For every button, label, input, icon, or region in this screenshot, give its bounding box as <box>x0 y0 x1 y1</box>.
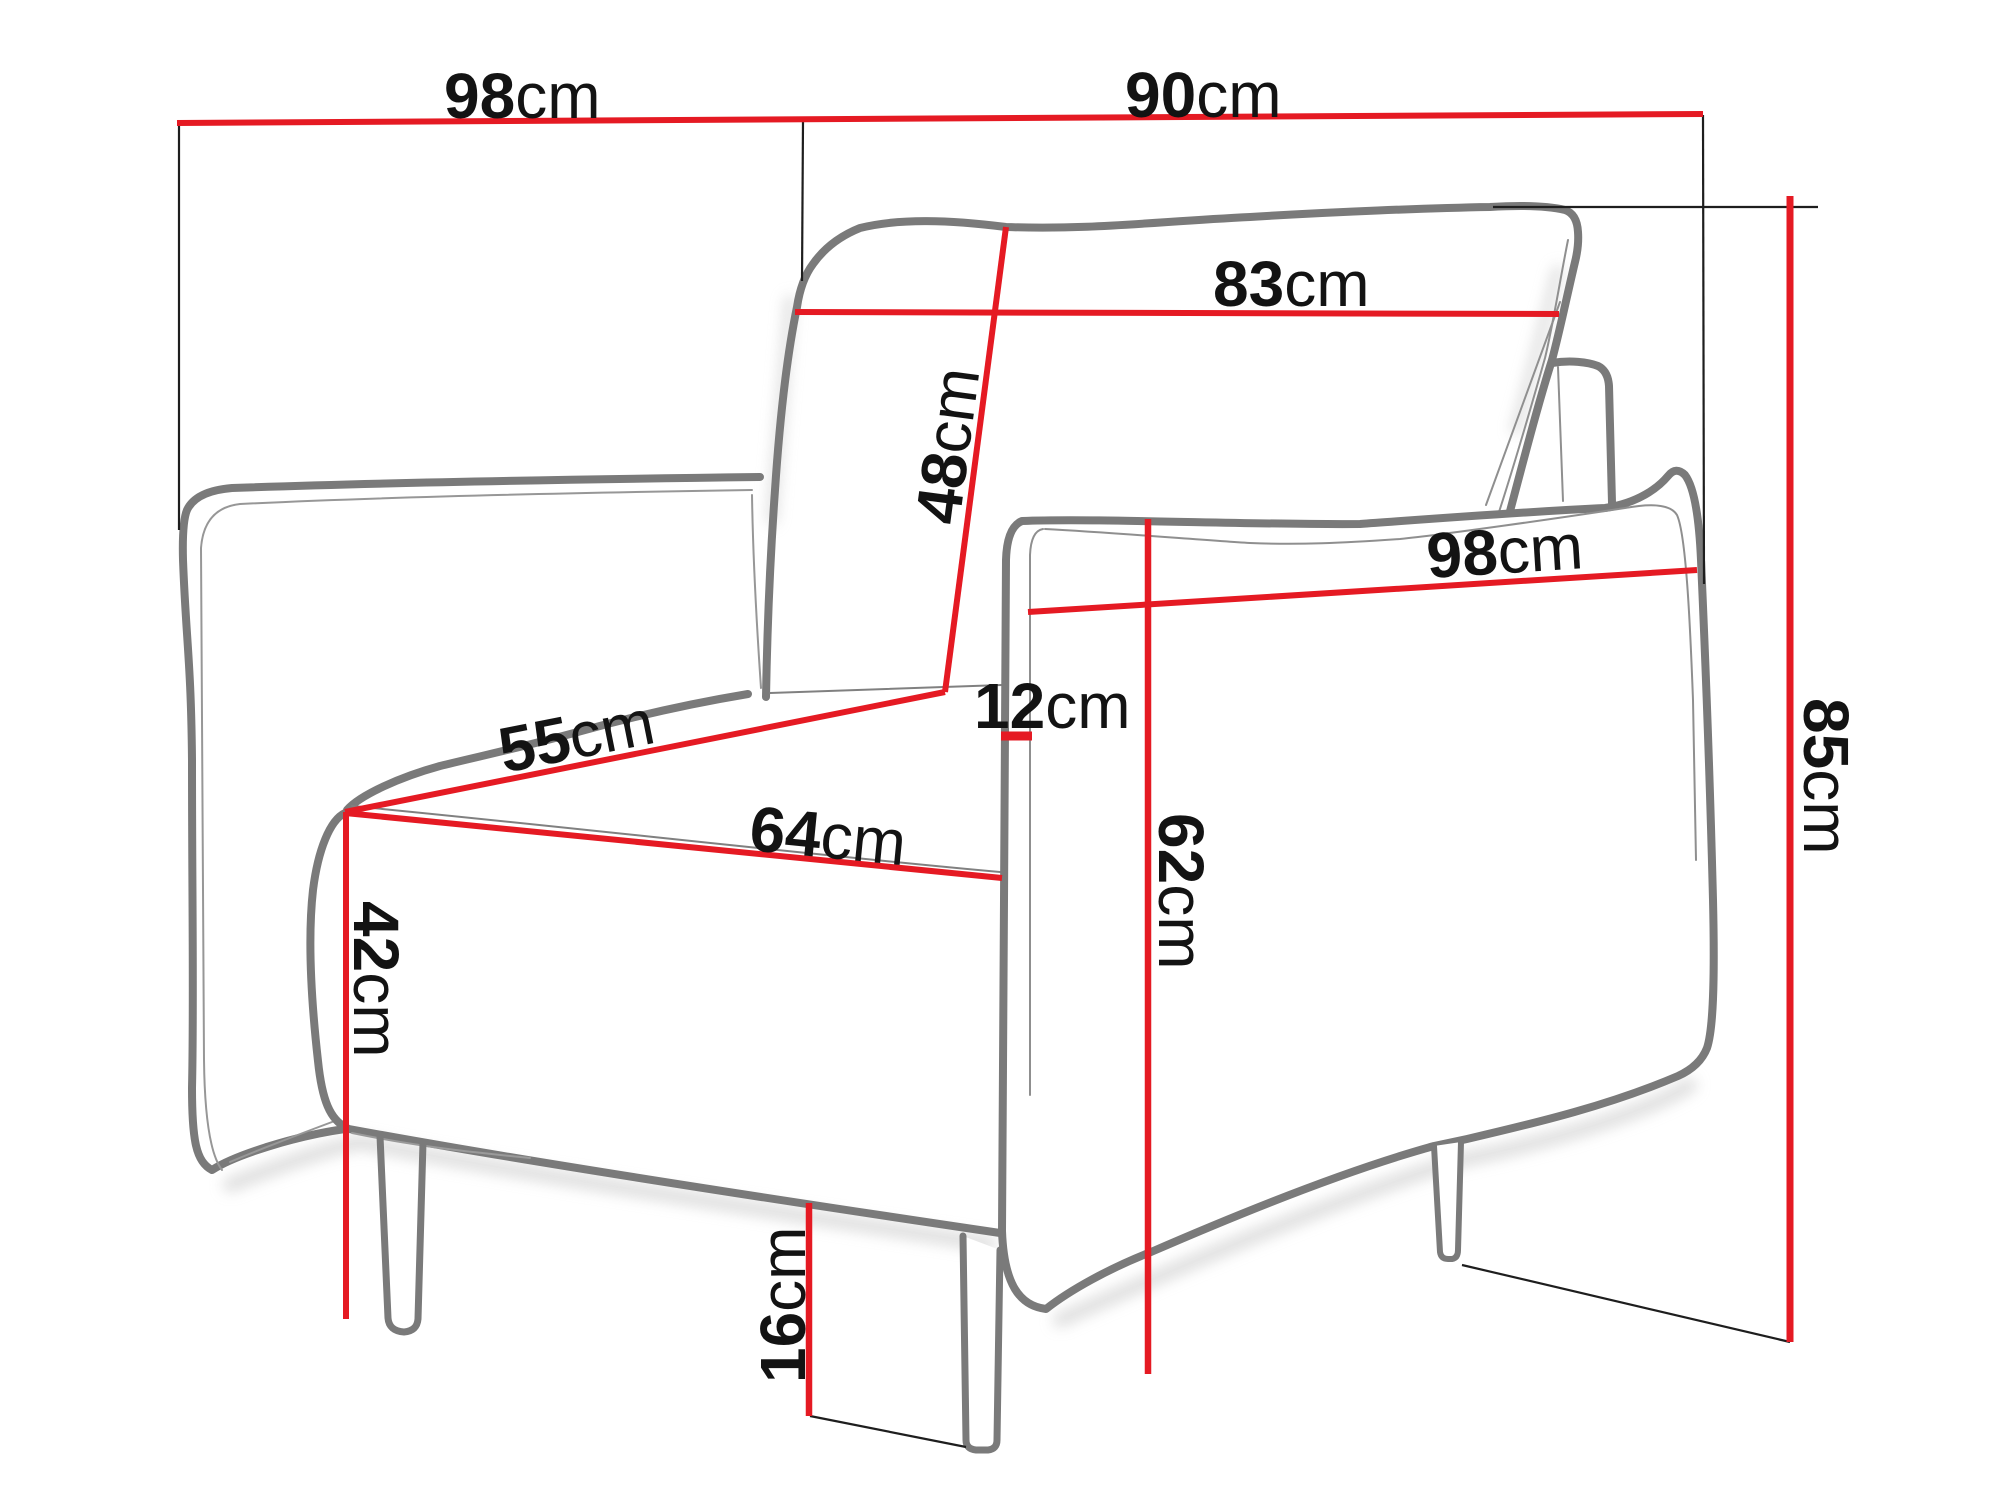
svg-text:64cm: 64cm <box>747 792 910 879</box>
svg-text:98cm: 98cm <box>1424 510 1585 592</box>
svg-text:16cm: 16cm <box>747 1227 819 1384</box>
svg-text:12cm: 12cm <box>974 670 1131 742</box>
svg-text:62cm: 62cm <box>1145 813 1217 970</box>
svg-text:98cm: 98cm <box>444 60 601 132</box>
svg-text:83cm: 83cm <box>1213 248 1370 320</box>
svg-text:90cm: 90cm <box>1125 59 1282 131</box>
svg-text:85cm: 85cm <box>1790 698 1862 855</box>
svg-text:42cm: 42cm <box>340 901 412 1058</box>
